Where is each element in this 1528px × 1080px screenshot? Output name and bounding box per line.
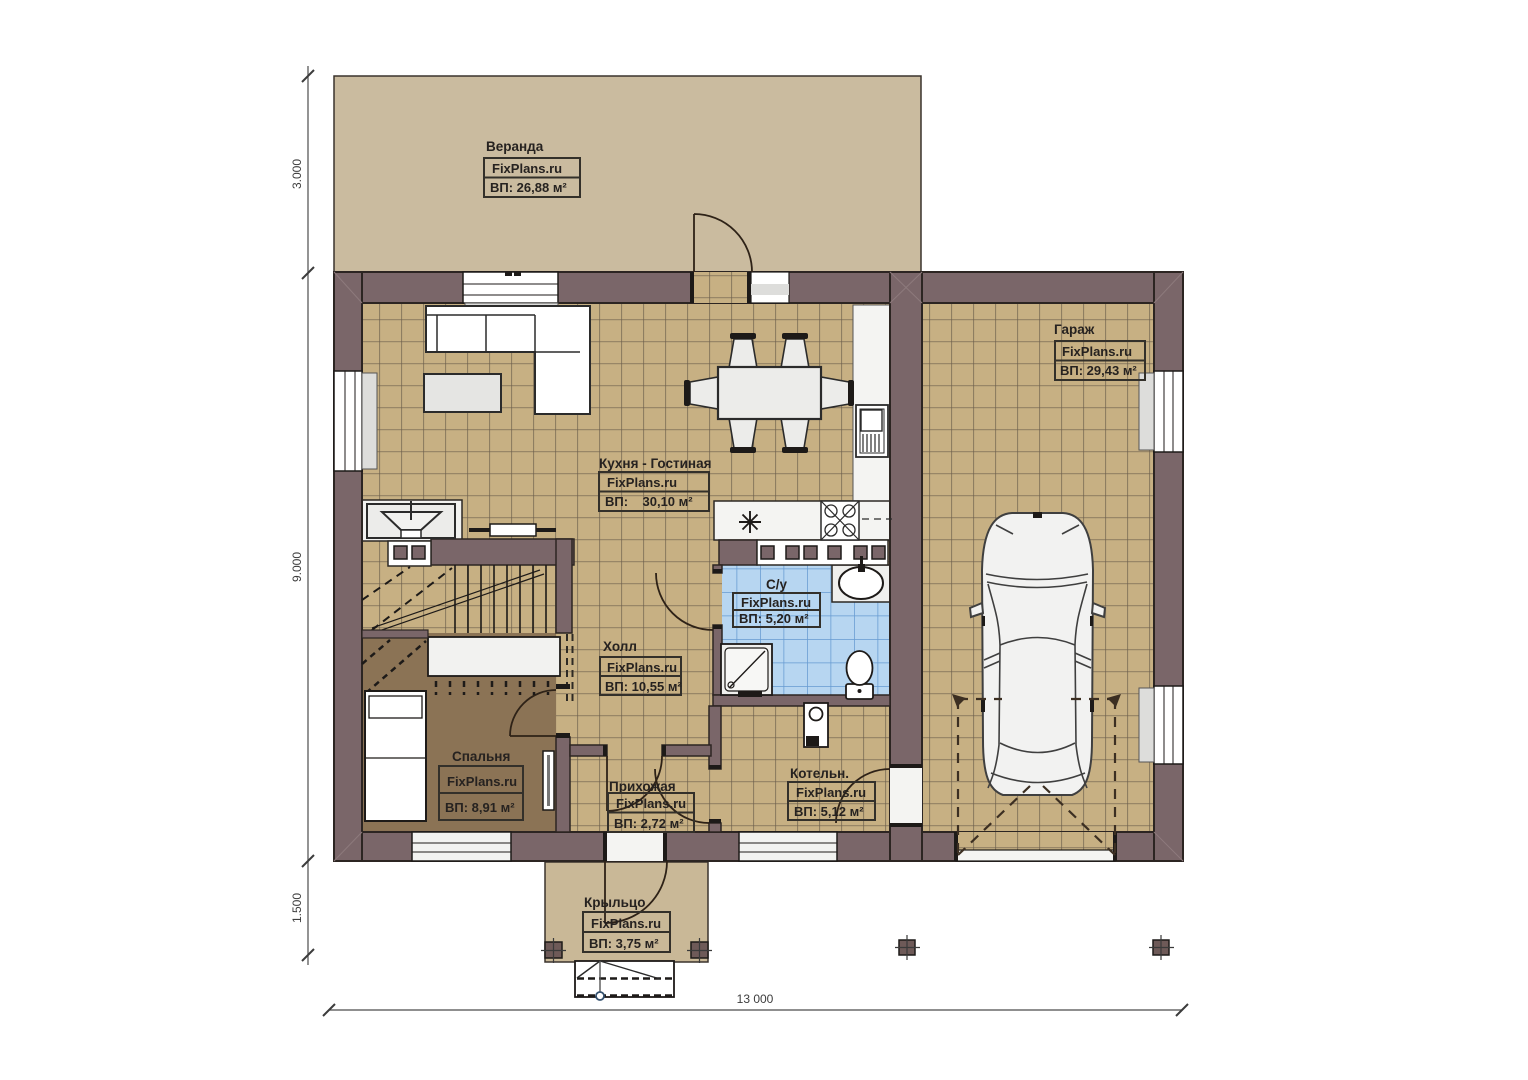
svg-text:ВП: 10,55 м²: ВП: 10,55 м²: [605, 679, 682, 694]
svg-text:ВП: 5,12 м²: ВП: 5,12 м²: [794, 804, 864, 819]
svg-text:Холл: Холл: [603, 639, 637, 654]
svg-text:FixPlans.ru: FixPlans.ru: [1062, 344, 1132, 359]
svg-text:ВП: 26,88 м²: ВП: 26,88 м²: [490, 180, 567, 195]
svg-text:Гараж: Гараж: [1054, 322, 1095, 337]
svg-text:Кухня - Гостиная: Кухня - Гостиная: [599, 456, 711, 471]
svg-text:ВП: 8,91 м²: ВП: 8,91 м²: [445, 800, 515, 815]
svg-text:FixPlans.ru: FixPlans.ru: [796, 785, 866, 800]
svg-text:FixPlans.ru: FixPlans.ru: [447, 774, 517, 789]
svg-text:Спальня: Спальня: [452, 749, 510, 764]
svg-text:ВП: 29,43 м²: ВП: 29,43 м²: [1060, 363, 1137, 378]
svg-text:1.500: 1.500: [290, 893, 304, 923]
svg-text:FixPlans.ru: FixPlans.ru: [741, 595, 811, 610]
svg-text:ВП: 2,72 м²: ВП: 2,72 м²: [614, 816, 684, 831]
svg-text:ВП: 5,20 м²: ВП: 5,20 м²: [739, 611, 809, 626]
svg-text:9.000: 9.000: [290, 552, 304, 582]
svg-text:С/у: С/у: [766, 577, 788, 592]
svg-text:ВП: 3,75 м²: ВП: 3,75 м²: [589, 936, 659, 951]
svg-text:FixPlans.ru: FixPlans.ru: [616, 796, 686, 811]
svg-text:Котельн.: Котельн.: [790, 766, 849, 781]
svg-text:3.000: 3.000: [290, 159, 304, 189]
svg-text:FixPlans.ru: FixPlans.ru: [492, 161, 562, 176]
svg-text:FixPlans.ru: FixPlans.ru: [591, 916, 661, 931]
svg-text:Прихожая: Прихожая: [609, 779, 676, 794]
svg-text:Веранда: Веранда: [486, 139, 544, 154]
svg-text:FixPlans.ru: FixPlans.ru: [607, 475, 677, 490]
svg-text:ВП: 30,10 м²: ВП: 30,10 м²: [605, 494, 693, 509]
svg-text:FixPlans.ru: FixPlans.ru: [607, 660, 677, 675]
svg-text:13 000: 13 000: [737, 992, 774, 1006]
svg-text:Крыльцо: Крыльцо: [584, 895, 645, 910]
